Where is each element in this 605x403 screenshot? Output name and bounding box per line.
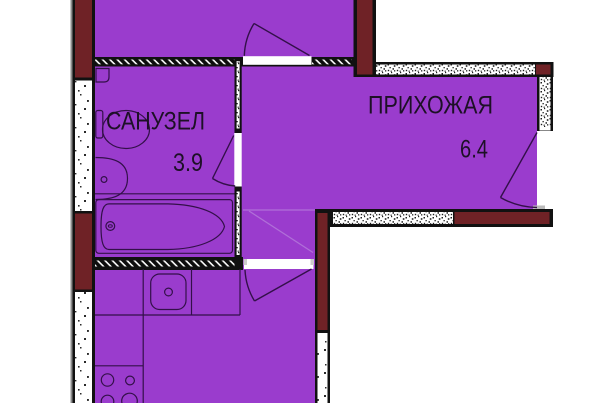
svg-text:6.4: 6.4 [460,136,488,164]
svg-text:САНУЗЕЛ: САНУЗЕЛ [106,108,205,136]
svg-text:3.9: 3.9 [173,149,203,177]
svg-text:ПРИХОЖАЯ: ПРИХОЖАЯ [368,92,493,120]
